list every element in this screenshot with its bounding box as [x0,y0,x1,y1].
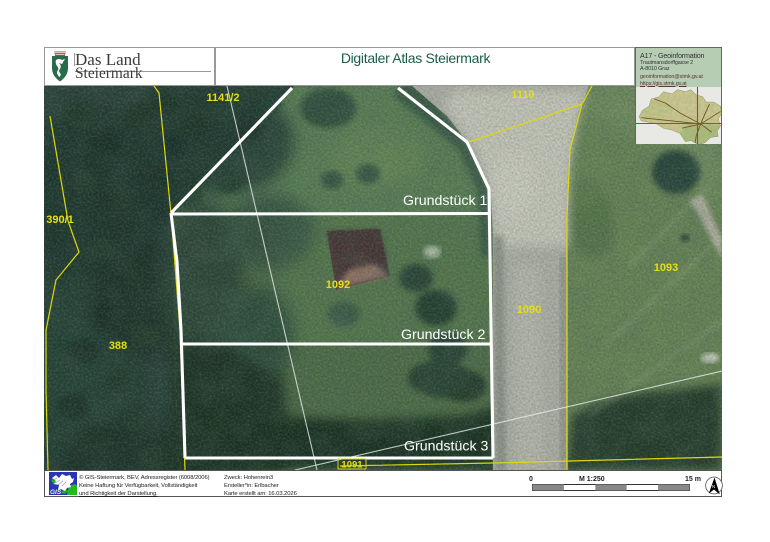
svg-text:Grundstück 2: Grundstück 2 [401,327,485,343]
svg-text:N: N [712,484,715,489]
svg-text:1092: 1092 [326,279,350,291]
svg-text:Grundstück 3: Grundstück 3 [404,439,488,455]
svg-text:1093: 1093 [654,262,678,274]
svg-text:GIS: GIS [50,489,62,495]
svg-text:1110: 1110 [511,89,534,101]
svg-text:Grundstück 1: Grundstück 1 [403,193,487,209]
svg-text:1141/2: 1141/2 [206,92,239,104]
svg-text:1091: 1091 [341,460,363,471]
svg-text:388: 388 [109,340,127,352]
svg-text:1090: 1090 [517,304,541,316]
svg-text:390/1: 390/1 [46,214,74,226]
